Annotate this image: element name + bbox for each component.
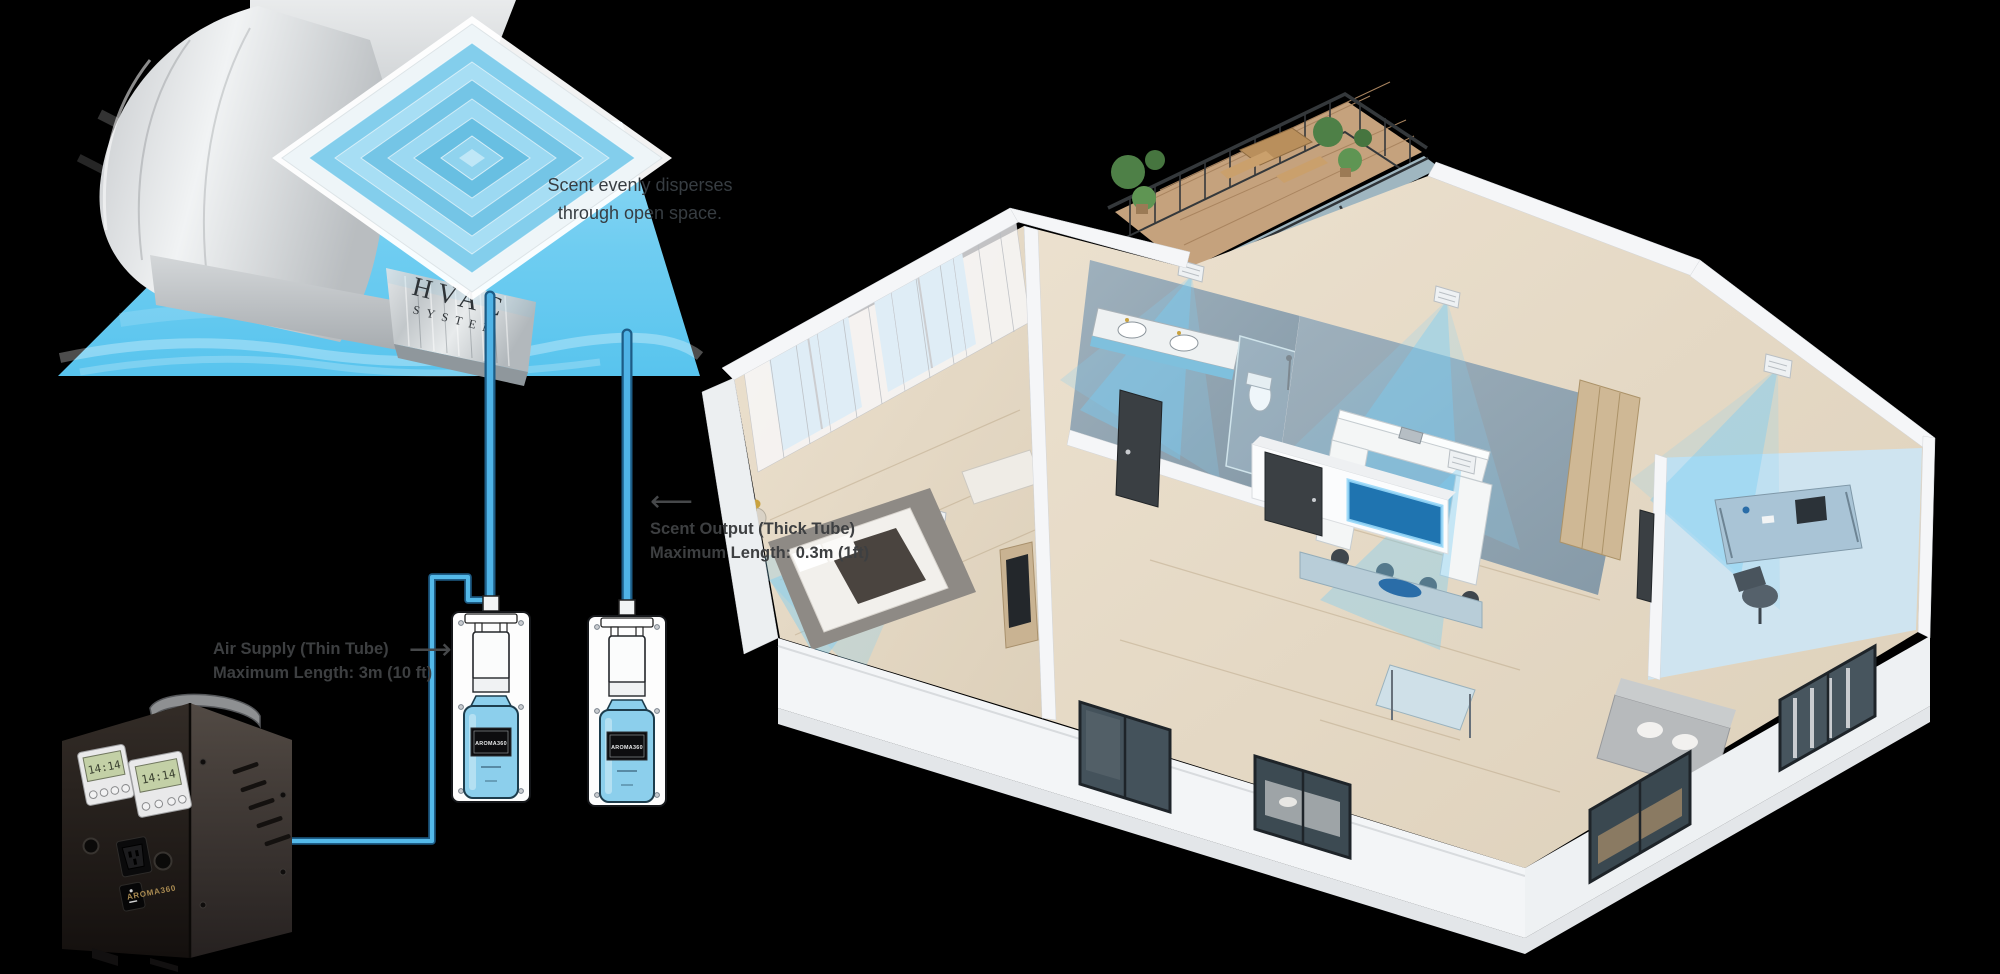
entry-door xyxy=(1116,390,1162,507)
bedroom-dresser xyxy=(1000,542,1038,648)
diffuser-2-brand: AROMA360 xyxy=(611,745,643,751)
timer-display-left: 14:14 xyxy=(77,744,134,806)
machine-side-panel xyxy=(190,703,292,958)
scent-machine: 14:14 14:14 xyxy=(62,694,292,972)
dispersion-line2: through open space. xyxy=(497,200,783,228)
power-inlet xyxy=(116,836,152,877)
scent-output-line1: Scent Output (Thick Tube) xyxy=(650,518,869,542)
diffuser-1-brand: AROMA360 xyxy=(475,741,507,747)
dispersion-line1: Scent evenly disperses xyxy=(497,172,783,200)
port-knob-right xyxy=(155,853,172,870)
left-arrow-icon: ⟵ xyxy=(650,492,869,512)
scent-diffuser-unit-1: AROMA360 xyxy=(452,596,530,802)
scent-output-note: ⟵ Scent Output (Thick Tube) Maximum Leng… xyxy=(650,492,869,566)
port-knob-left xyxy=(84,839,99,854)
right-arrow-icon: ⟶ xyxy=(409,642,452,658)
air-supply-line2: Maximum Length: 3m (10 ft) xyxy=(213,662,452,686)
dispersion-note: Scent evenly disperses through open spac… xyxy=(497,172,783,228)
air-supply-line1: Air Supply (Thin Tube) xyxy=(213,638,389,662)
hvac-scent-diagram: HVAC SYSTEM xyxy=(0,0,2000,974)
scent-diffuser-unit-2: AROMA360 xyxy=(588,600,666,806)
monitor xyxy=(1795,496,1827,524)
office-door xyxy=(1637,510,1654,602)
scent-output-line2: Maximum Length: 0.3m (1ft) xyxy=(650,542,869,566)
air-supply-note: Air Supply (Thin Tube) ⟶ Maximum Length:… xyxy=(213,638,452,686)
timer-display-right: 14:14 xyxy=(128,751,192,818)
machine-front-panel xyxy=(62,703,190,958)
apartment-cutaway xyxy=(700,80,2000,974)
